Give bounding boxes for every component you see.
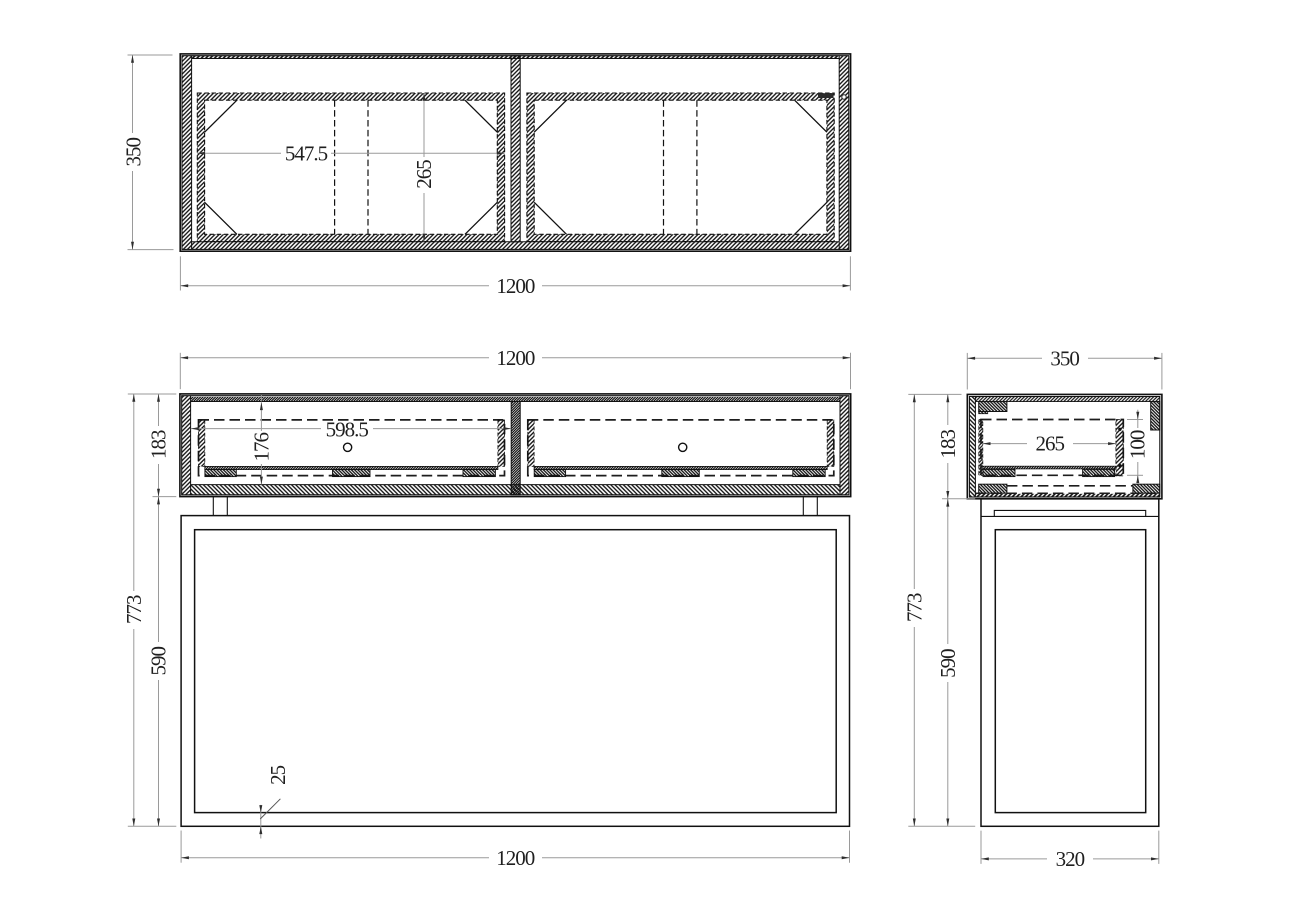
svg-text:1200: 1200 [496, 346, 535, 370]
svg-text:320: 320 [1056, 847, 1085, 871]
svg-text:350: 350 [122, 138, 146, 167]
svg-text:265: 265 [412, 160, 436, 189]
svg-text:1200: 1200 [496, 274, 535, 298]
svg-text:183: 183 [147, 430, 171, 459]
svg-text:100: 100 [1126, 430, 1150, 459]
svg-text:598.5: 598.5 [326, 418, 369, 442]
svg-text:176: 176 [250, 433, 274, 462]
svg-text:547.5: 547.5 [285, 141, 328, 165]
svg-text:1200: 1200 [496, 846, 535, 870]
svg-text:265: 265 [1036, 432, 1065, 456]
svg-text:590: 590 [147, 646, 171, 675]
svg-text:25: 25 [266, 765, 290, 785]
svg-text:773: 773 [902, 593, 926, 622]
svg-text:183: 183 [936, 429, 960, 458]
svg-text:350: 350 [1050, 346, 1079, 370]
svg-text:773: 773 [122, 595, 146, 624]
svg-text:590: 590 [936, 649, 960, 678]
